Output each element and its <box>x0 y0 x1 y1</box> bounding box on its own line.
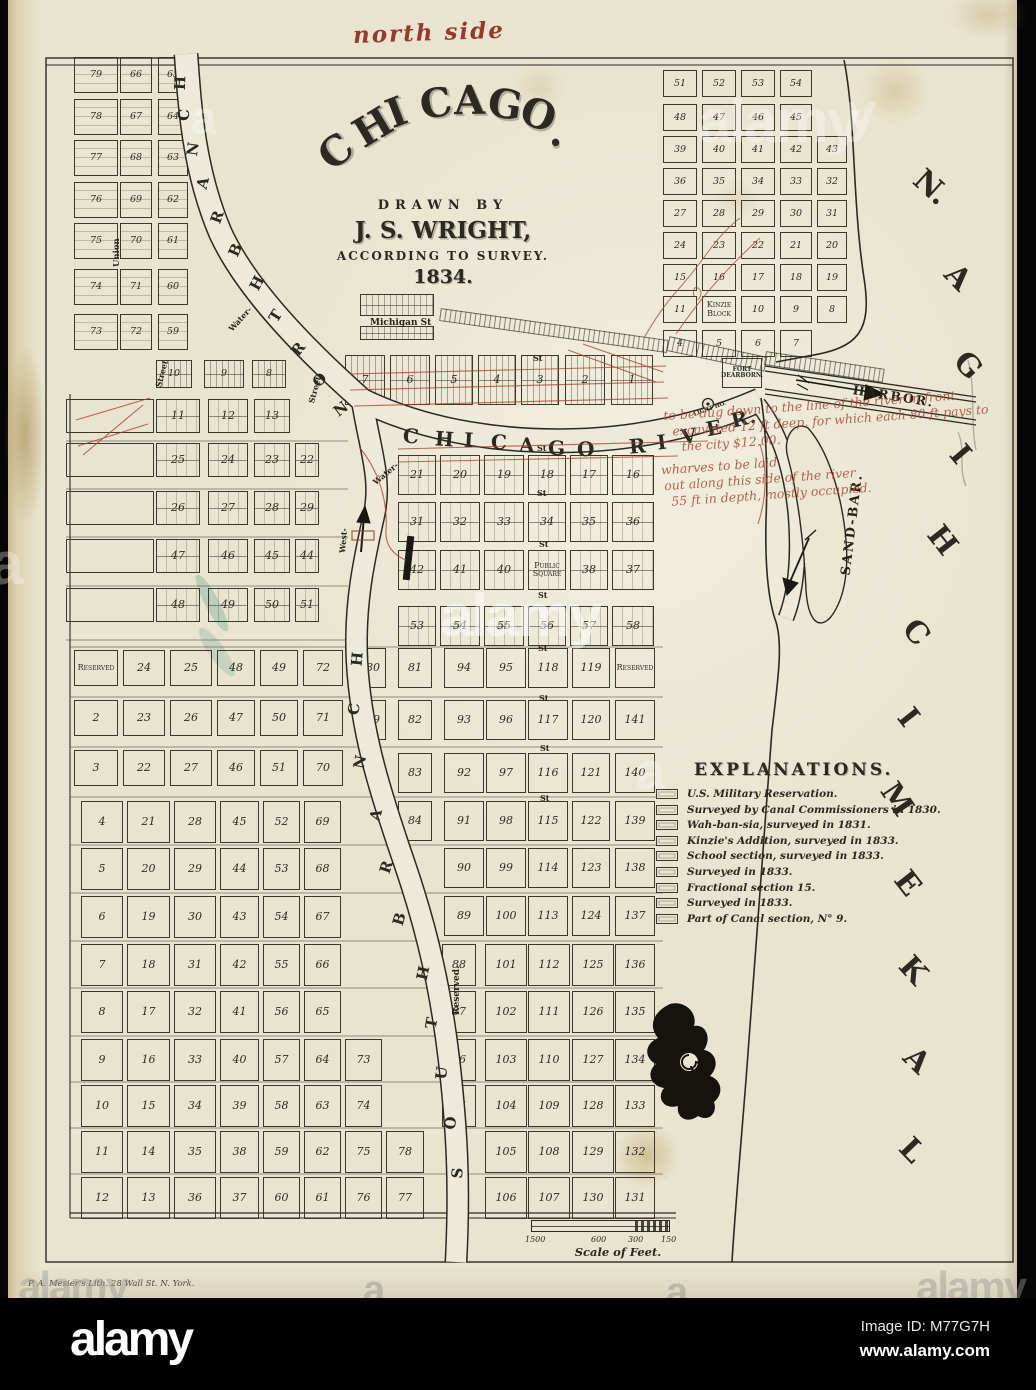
stock-photo-page: 7966657867647768637669627570617471607372… <box>0 0 1036 1390</box>
alamy-watermark: alamy <box>698 98 858 146</box>
map-paper: 7966657867647768637669627570617471607372… <box>8 0 1017 1298</box>
image-id-text: Image ID: M77G7H <box>861 1318 990 1335</box>
alamy-watermark: y <box>846 92 874 135</box>
alamy-url[interactable]: www.alamy.com <box>860 1341 990 1361</box>
handwriting-squiggle <box>644 218 760 338</box>
alamy-watermark: a <box>0 540 21 588</box>
alamy-footer-bar: alamy Image ID: M77G7H www.alamy.com <box>0 1298 1036 1390</box>
alamy-watermark: alamy <box>440 592 600 640</box>
alamy-logo[interactable]: alamy <box>70 1312 191 1367</box>
red-ink-overlay <box>8 0 1017 1298</box>
alamy-watermark: a <box>191 100 215 137</box>
alamy-watermark: a <box>636 752 663 794</box>
